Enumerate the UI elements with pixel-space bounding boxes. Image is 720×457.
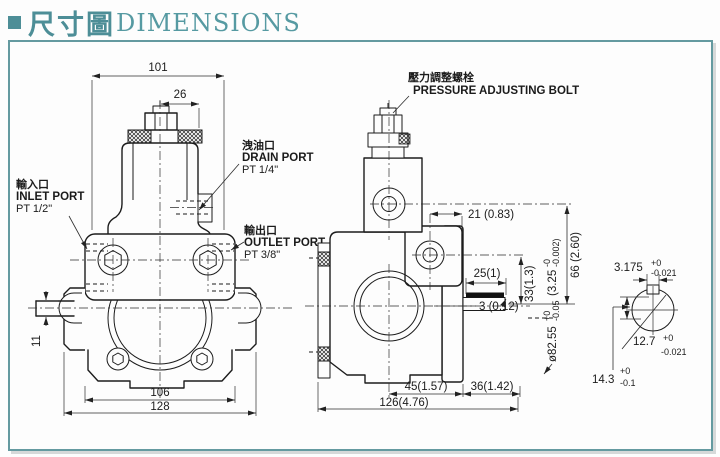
- port-seal-bottom: [318, 347, 330, 361]
- dia-inch-label: (3.25: [547, 270, 559, 296]
- bottom-screw-right: [191, 348, 213, 370]
- dia-inch-tol-minus: -0.002): [551, 238, 561, 267]
- drain-port-label-en: DRAIN PORT: [242, 152, 314, 164]
- key-width-tol-plus: +0: [651, 258, 661, 268]
- side-view: 壓力調整螺栓 PRESSURE ADJUSTING BOLT 21 (0.83)…: [305, 70, 582, 412]
- knurl-right: [178, 130, 202, 143]
- key-width-tol-minus: -0.021: [651, 268, 677, 278]
- dim-label-66: 66 (2.60): [570, 232, 582, 278]
- dim-label-33: 33(1.3): [524, 265, 536, 302]
- bottom-screw-left: [107, 348, 129, 370]
- shaft-key: [466, 293, 504, 298]
- pressure-bolt-label-en: PRESSURE ADJUSTING BOLT: [413, 85, 579, 97]
- valve-block: [405, 226, 462, 286]
- drain-boss: [198, 194, 212, 222]
- inlet-port-label-en: INLET PORT: [16, 191, 84, 203]
- dim-label-36: 36(1.42): [471, 381, 514, 393]
- outlet-port-label-zh: 輸出口: [244, 223, 277, 237]
- key-width-label: 3.175: [614, 262, 643, 274]
- dim-label-25: 25(1): [474, 268, 501, 280]
- dim-label-101: 101: [148, 62, 167, 74]
- inlet-port-size: PT 1/2": [16, 203, 52, 215]
- dim-label-26: 26: [174, 89, 187, 101]
- port-seal-top: [318, 252, 330, 266]
- inlet-port-label-zh: 輸入口: [16, 177, 49, 191]
- shaft-keyway-detail: 3.175 +0 -0.021 12.7 +0 -0.021 14.3 +0 -…: [592, 258, 687, 388]
- shaft-dia-label: 12.7: [633, 336, 655, 348]
- locknut-hatch: [399, 134, 410, 144]
- adjusting-bolt-nut: [374, 115, 402, 133]
- shaft-height-tol-plus: +0: [620, 366, 630, 376]
- pressure-bolt-label-zh: 壓力調整螺栓: [408, 70, 474, 84]
- outlet-port-size: PT 3/8": [244, 249, 280, 261]
- dim-label-11: 11: [31, 335, 43, 347]
- dim-label-106: 106: [150, 387, 169, 399]
- dia-label: ø82.55: [547, 326, 559, 362]
- dim-label-128: 128: [150, 401, 169, 413]
- front-view: 101 26 11 106 128 輸入口 INLET PORT PT 1/2"…: [16, 62, 325, 416]
- shaft-height-label: 14.3: [592, 374, 614, 386]
- dim-label-126: 126(4.76): [379, 397, 428, 409]
- drain-port-label-zh: 洩油口: [242, 138, 275, 152]
- spring-tower: [364, 158, 422, 232]
- dim-label-21: 21 (0.83): [468, 209, 514, 221]
- shaft-height-tol-minus: -0.1: [620, 378, 636, 388]
- dimensions-page: 尺寸圖 DIMENSIONS: [0, 0, 720, 457]
- knurl-left: [128, 130, 151, 143]
- shaft-dia-tol-minus: -0.021: [661, 347, 687, 357]
- dim-label-3: 3 (0.12): [479, 301, 519, 313]
- pilot-diameter-callout: ø82.55 +0 -0.05 (3.25 -0 -0.002): [542, 238, 561, 362]
- dimension-drawing: 101 26 11 106 128 輸入口 INLET PORT PT 1/2"…: [0, 0, 720, 457]
- shaft-dia-tol-plus: +0: [663, 333, 673, 343]
- outlet-port-label-en: OUTLET PORT: [244, 237, 325, 249]
- drain-port-size: PT 1/4": [242, 164, 278, 176]
- dim-label-45: 45(1.57): [405, 381, 448, 393]
